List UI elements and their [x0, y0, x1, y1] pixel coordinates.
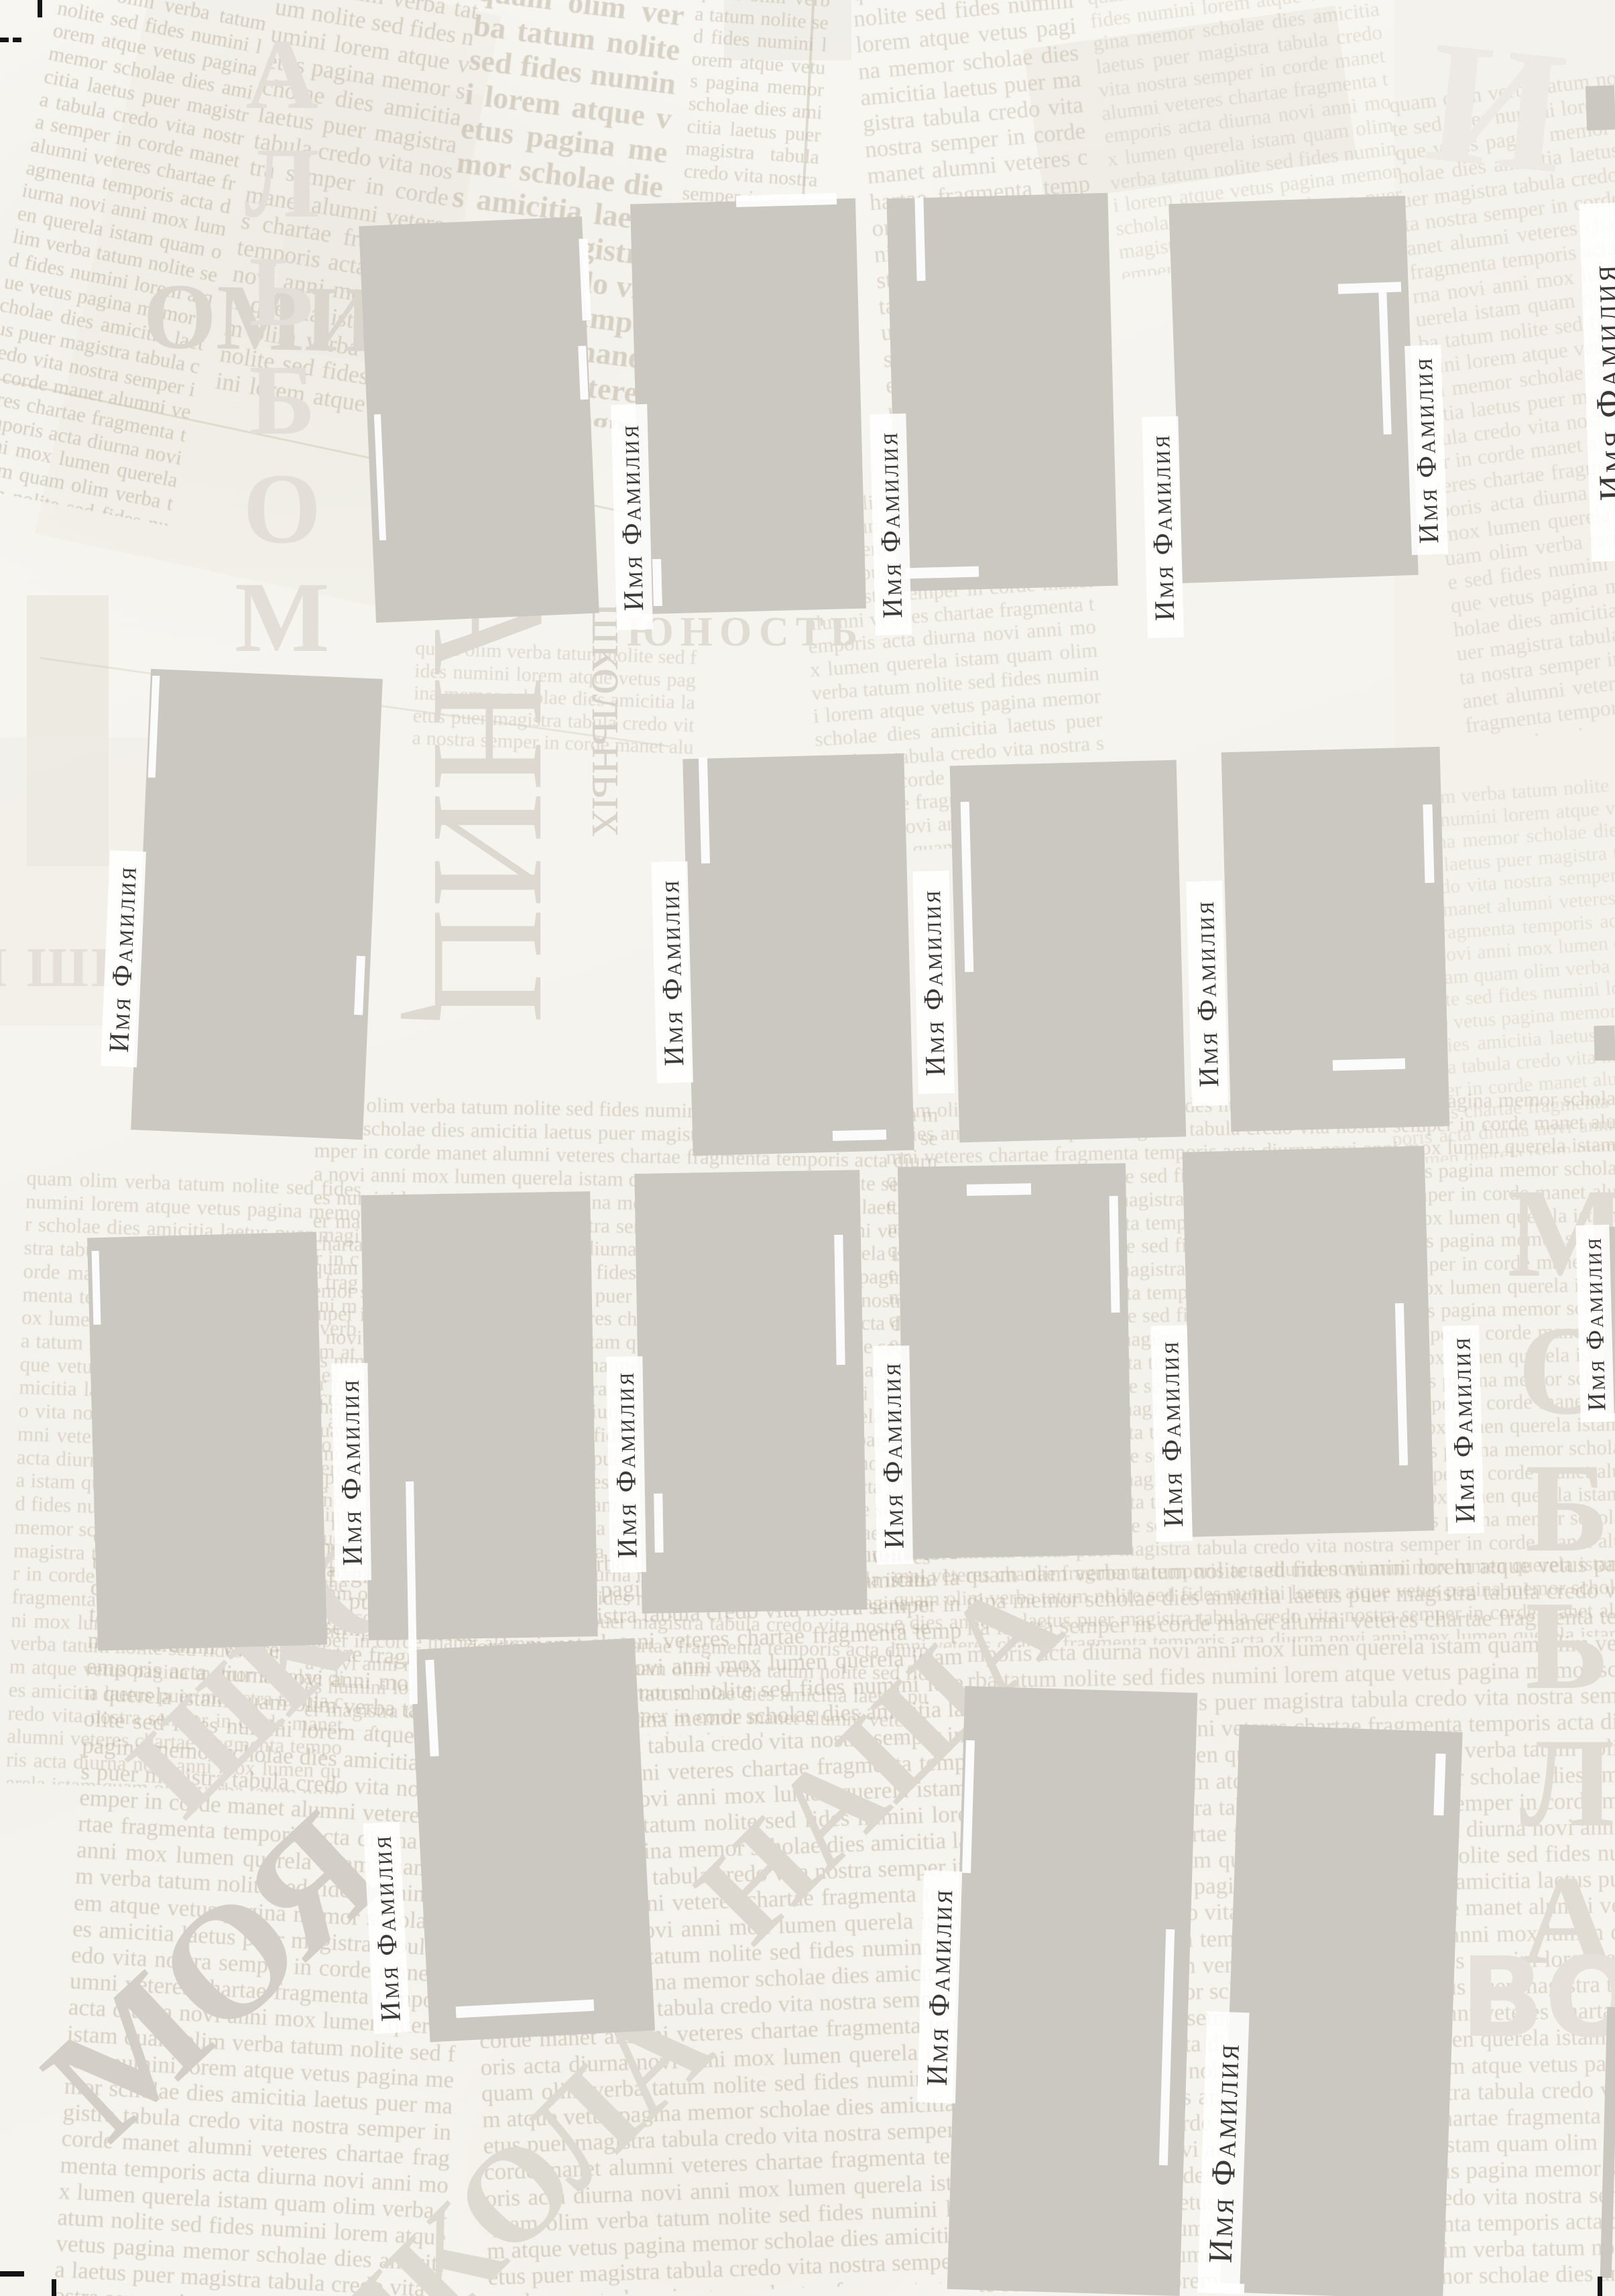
- photo-frame-placeholder: [410, 1638, 655, 2043]
- tape-strip: [654, 1494, 664, 1553]
- photo-name-label: Имя Фамилия: [1443, 1325, 1484, 1534]
- photo-frame-placeholder: [630, 198, 866, 615]
- crop-mark: [0, 38, 9, 42]
- photo-name-label-text: Имя Фамилия: [920, 1888, 960, 2087]
- photo-frame-placeholder: [131, 669, 383, 1140]
- photo-name-label-text: Имя Фамилия: [334, 1378, 369, 1566]
- photo-frame-placeholder: [1586, 85, 1615, 130]
- photo-name-label-text: Имя Фамилия: [1583, 263, 1615, 501]
- photo-name-label-text: Имя Фамилия: [872, 430, 909, 619]
- photo-name-label-text: Имя Фамилия: [654, 878, 691, 1067]
- photo-name-label-text: Имя Фамилия: [103, 865, 143, 1054]
- photo-name-label: Имя Фамилия: [870, 414, 912, 636]
- photo-frame-placeholder: [682, 753, 914, 1156]
- bg-word: А Л Ь Б О М: [235, 20, 330, 672]
- photo-name-label: Имя Фамилия: [912, 871, 955, 1094]
- photo-name-label: Имя Фамилия: [1186, 881, 1228, 1106]
- tape-strip: [905, 566, 979, 579]
- bg-word: ЮНОСТЬ: [627, 611, 864, 653]
- photo-name-label: Имя Фамилия: [1142, 416, 1184, 638]
- photo-frame-placeholder: [87, 1232, 327, 1651]
- photo-frame-placeholder: [898, 1163, 1132, 1559]
- photo-name-label: Имя Фамилия: [651, 861, 693, 1083]
- photo-name-label-text: Имя Фамилия: [876, 1361, 911, 1549]
- photo-name-label: Имя Фамилия: [1575, 1225, 1614, 1423]
- tape-strip: [967, 1183, 1031, 1196]
- photo-name-label: Имя Фамилия: [331, 1363, 371, 1581]
- photo-name-label-text: Имя Фамилия: [1200, 2042, 1246, 2264]
- photo-name-label-text: Имя Фамилия: [609, 1370, 644, 1559]
- crop-mark: [0, 2271, 24, 2277]
- photo-frame-placeholder: [950, 760, 1187, 1143]
- photo-frame-placeholder: [1594, 1026, 1615, 1061]
- tape-strip: [833, 1130, 886, 1141]
- photo-name-label-text: Имя Фамилия: [1407, 356, 1446, 544]
- photo-name-label-text: Имя Фамилия: [915, 888, 952, 1077]
- bg-word: ВОС: [1460, 1943, 1615, 2053]
- photo-frame-placeholder: [359, 217, 599, 623]
- photo-name-label-text: Имя Фамилия: [1153, 1339, 1190, 1528]
- tape-strip: [652, 559, 662, 606]
- photo-name-label-text: Имя Фамилия: [1445, 1335, 1482, 1524]
- photo-name-label: Имя Фамилия: [606, 1356, 646, 1573]
- photo-name-label-text: Имя Фамилия: [1189, 899, 1225, 1087]
- tape-strip: [1433, 1754, 1445, 1815]
- photo-name-label-text: Имя Фамилия: [613, 423, 650, 611]
- photo-name-label-text: Имя Фамилия: [1144, 433, 1181, 621]
- photo-frame-placeholder: [1219, 1724, 1462, 2296]
- photo-name-label-text: Имя Фамилия: [365, 1833, 408, 2022]
- album-page-canvas: quam olim verba tatum nolite sed fides n…: [0, 0, 1615, 2296]
- photo-name-label-text: Имя Фамилия: [1578, 1235, 1612, 1411]
- photo-name-label: Имя Фамилия: [917, 1870, 962, 2104]
- bg-word: И: [1420, 13, 1573, 201]
- crop-mark: [38, 0, 42, 17]
- photo-frame-placeholder: [947, 1686, 1198, 2296]
- photo-name-label: Имя Фамилия: [611, 404, 653, 630]
- photo-frame-placeholder: [361, 1191, 598, 1640]
- crop-mark: [1598, 2277, 1602, 2296]
- crop-mark: [52, 2279, 56, 2296]
- photo-name-label: Имя Фамилия: [1151, 1325, 1193, 1542]
- photo-frame-placeholder: [1221, 747, 1450, 1132]
- photo-name-label: Имя Фамилия: [873, 1345, 913, 1565]
- tape-strip: [1333, 1059, 1405, 1071]
- photo-frame-placeholder: [1169, 196, 1419, 583]
- photo-name-label: Имя Фамилия: [1404, 345, 1448, 555]
- photo-frame-placeholder: [634, 1170, 867, 1614]
- crop-mark: [13, 38, 21, 42]
